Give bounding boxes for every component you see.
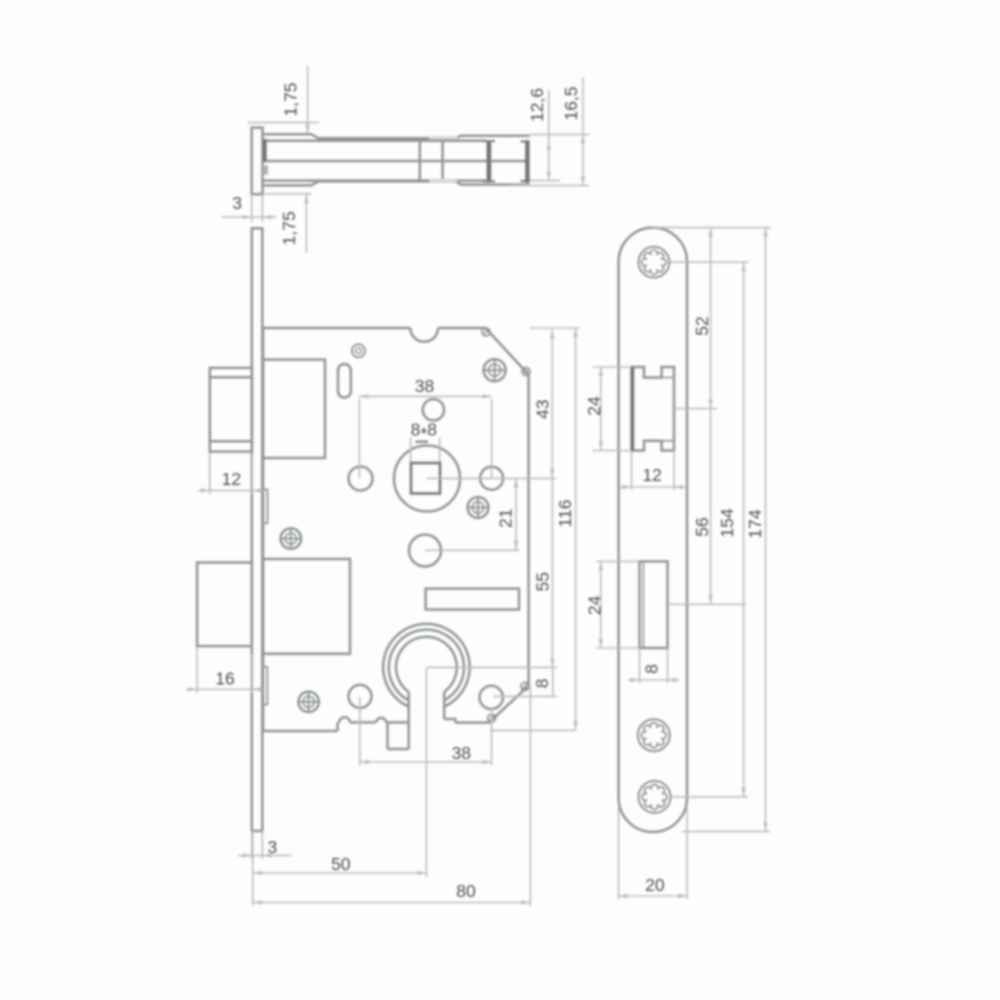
svg-text:12: 12: [642, 465, 661, 485]
svg-text:116: 116: [555, 500, 575, 528]
svg-text:56: 56: [692, 517, 712, 536]
svg-text:21: 21: [496, 509, 516, 528]
svg-text:43: 43: [532, 400, 552, 419]
svg-text:12,6: 12,6: [527, 88, 547, 122]
svg-text:3: 3: [268, 837, 278, 857]
svg-text:20: 20: [645, 875, 665, 895]
svg-text:38: 38: [415, 376, 434, 396]
svg-text:80: 80: [456, 881, 476, 901]
svg-text:24: 24: [584, 396, 604, 416]
svg-text:52: 52: [692, 316, 712, 335]
svg-text:38: 38: [452, 743, 471, 763]
svg-text:3: 3: [232, 193, 242, 213]
svg-text:12: 12: [222, 469, 241, 489]
svg-text:1,75: 1,75: [279, 211, 299, 245]
svg-text:50: 50: [331, 854, 351, 874]
svg-text:55: 55: [533, 572, 553, 591]
svg-text:174: 174: [745, 509, 765, 538]
svg-text:8: 8: [642, 664, 662, 674]
svg-text:1,75: 1,75: [281, 82, 301, 116]
svg-text:8: 8: [532, 679, 552, 689]
svg-text:24: 24: [584, 595, 604, 615]
svg-text:16: 16: [215, 669, 234, 689]
svg-text:16,5: 16,5: [561, 86, 581, 120]
svg-text:154: 154: [717, 508, 737, 537]
